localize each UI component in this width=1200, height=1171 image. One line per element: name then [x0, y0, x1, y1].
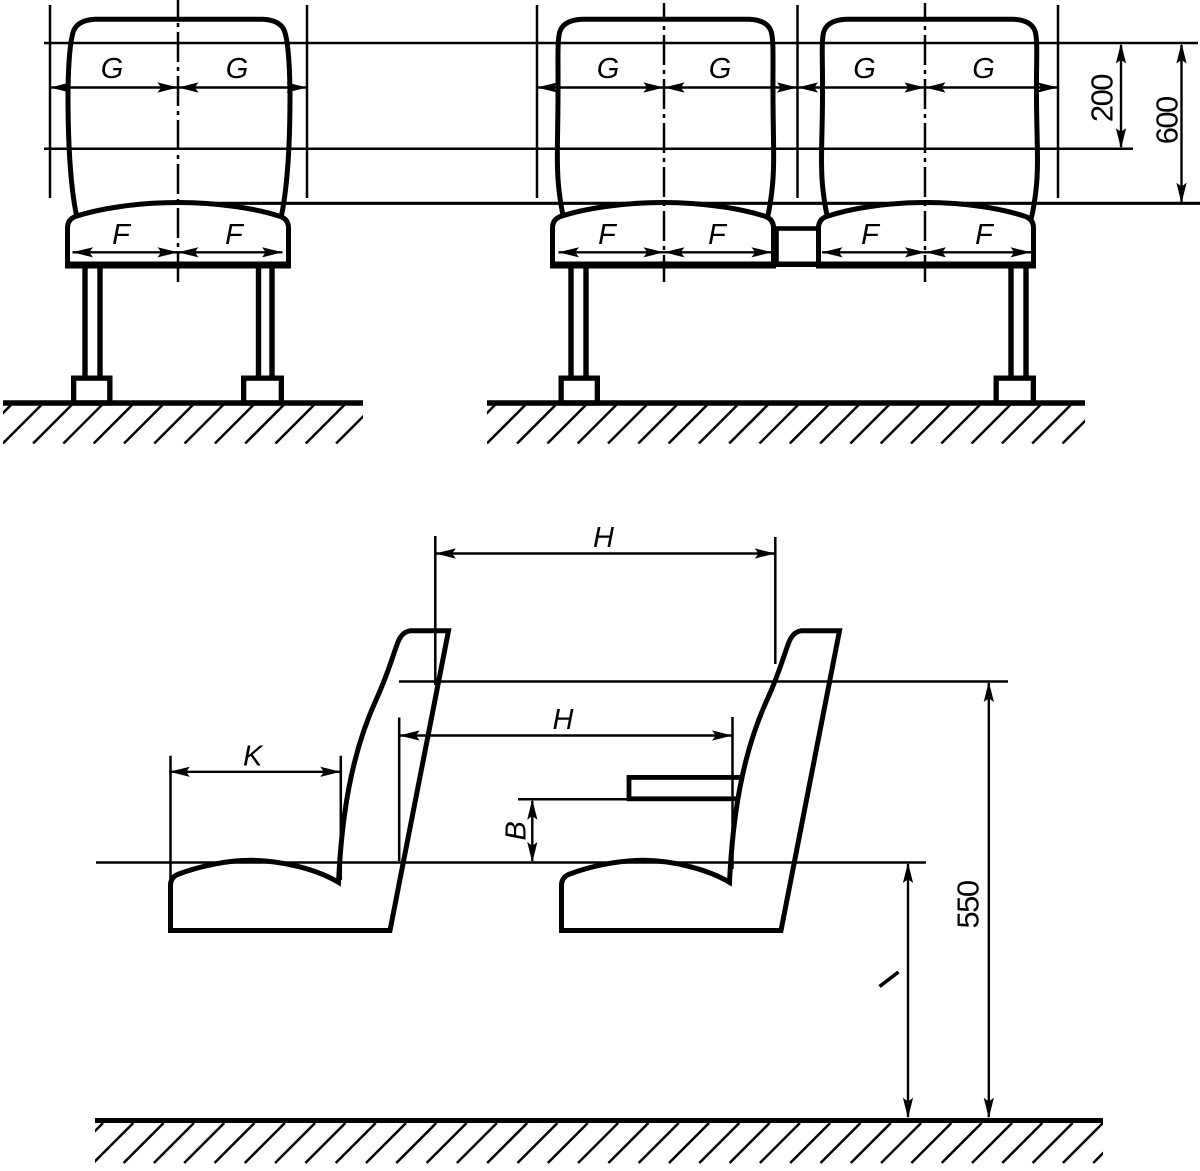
svg-text:F: F: [708, 219, 728, 251]
svg-text:550: 550: [951, 880, 986, 928]
svg-text:G: G: [972, 53, 995, 85]
svg-text:G: G: [597, 53, 620, 85]
svg-text:B: B: [501, 821, 533, 840]
svg-text:G: G: [853, 53, 876, 85]
svg-text:600: 600: [1150, 96, 1185, 144]
svg-text:H: H: [553, 704, 574, 736]
svg-text:F: F: [112, 219, 132, 251]
svg-text:F: F: [598, 219, 618, 251]
svg-text:H: H: [593, 522, 614, 554]
svg-text:F: F: [861, 219, 881, 251]
svg-text:200: 200: [1085, 74, 1120, 122]
svg-text:G: G: [226, 53, 249, 85]
svg-text:F: F: [975, 219, 995, 251]
svg-text:K: K: [243, 741, 264, 773]
svg-text:G: G: [101, 53, 124, 85]
svg-text:G: G: [709, 53, 732, 85]
svg-text:F: F: [225, 219, 245, 251]
